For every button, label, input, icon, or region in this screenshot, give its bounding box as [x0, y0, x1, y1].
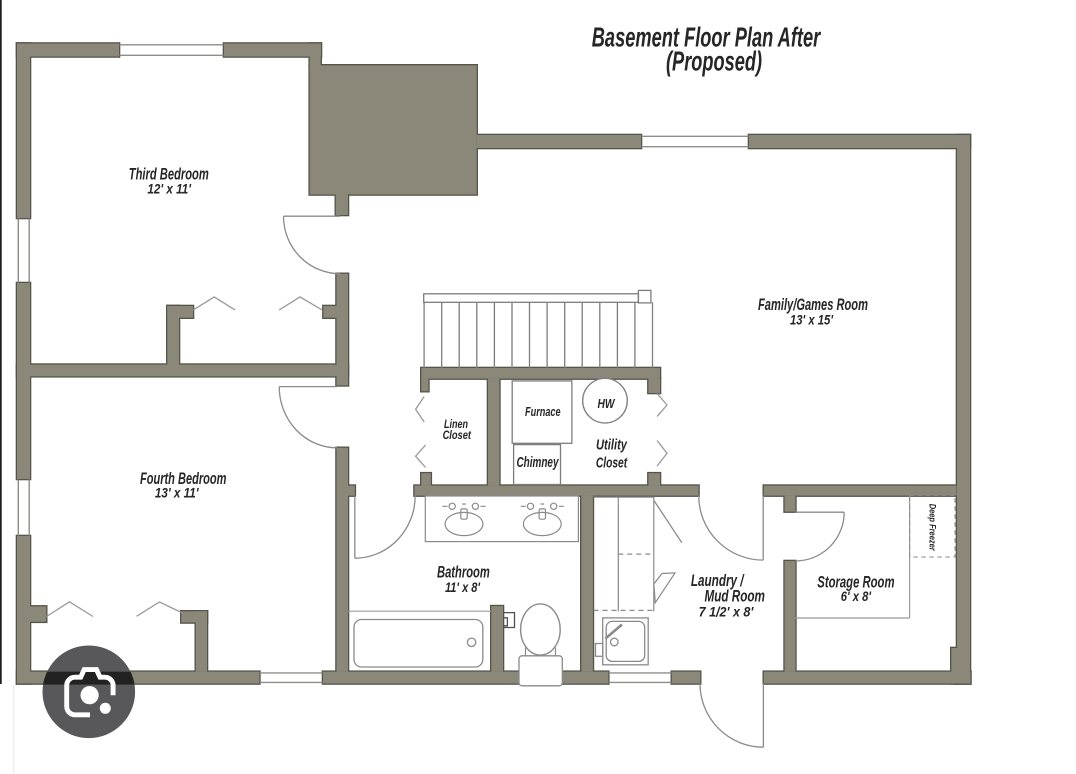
- svg-text:6' x 8': 6' x 8': [841, 588, 872, 604]
- svg-text:12' x 11': 12' x 11': [147, 181, 191, 197]
- svg-text:11' x 8': 11' x 8': [445, 579, 481, 595]
- svg-text:7 1/2' x 8': 7 1/2' x 8': [699, 604, 754, 620]
- svg-text:13' x 15': 13' x 15': [790, 312, 834, 328]
- svg-text:Closet: Closet: [443, 428, 472, 442]
- svg-text:Chimney: Chimney: [517, 455, 560, 471]
- svg-text:(Proposed): (Proposed): [666, 46, 762, 77]
- svg-text:HW: HW: [598, 397, 616, 411]
- svg-text:Deep Freezer: Deep Freezer: [927, 504, 937, 551]
- svg-text:13' x 11': 13' x 11': [155, 485, 199, 501]
- svg-text:Furnace: Furnace: [525, 404, 561, 419]
- svg-text:Utility: Utility: [596, 438, 628, 454]
- svg-text:Closet: Closet: [596, 456, 628, 472]
